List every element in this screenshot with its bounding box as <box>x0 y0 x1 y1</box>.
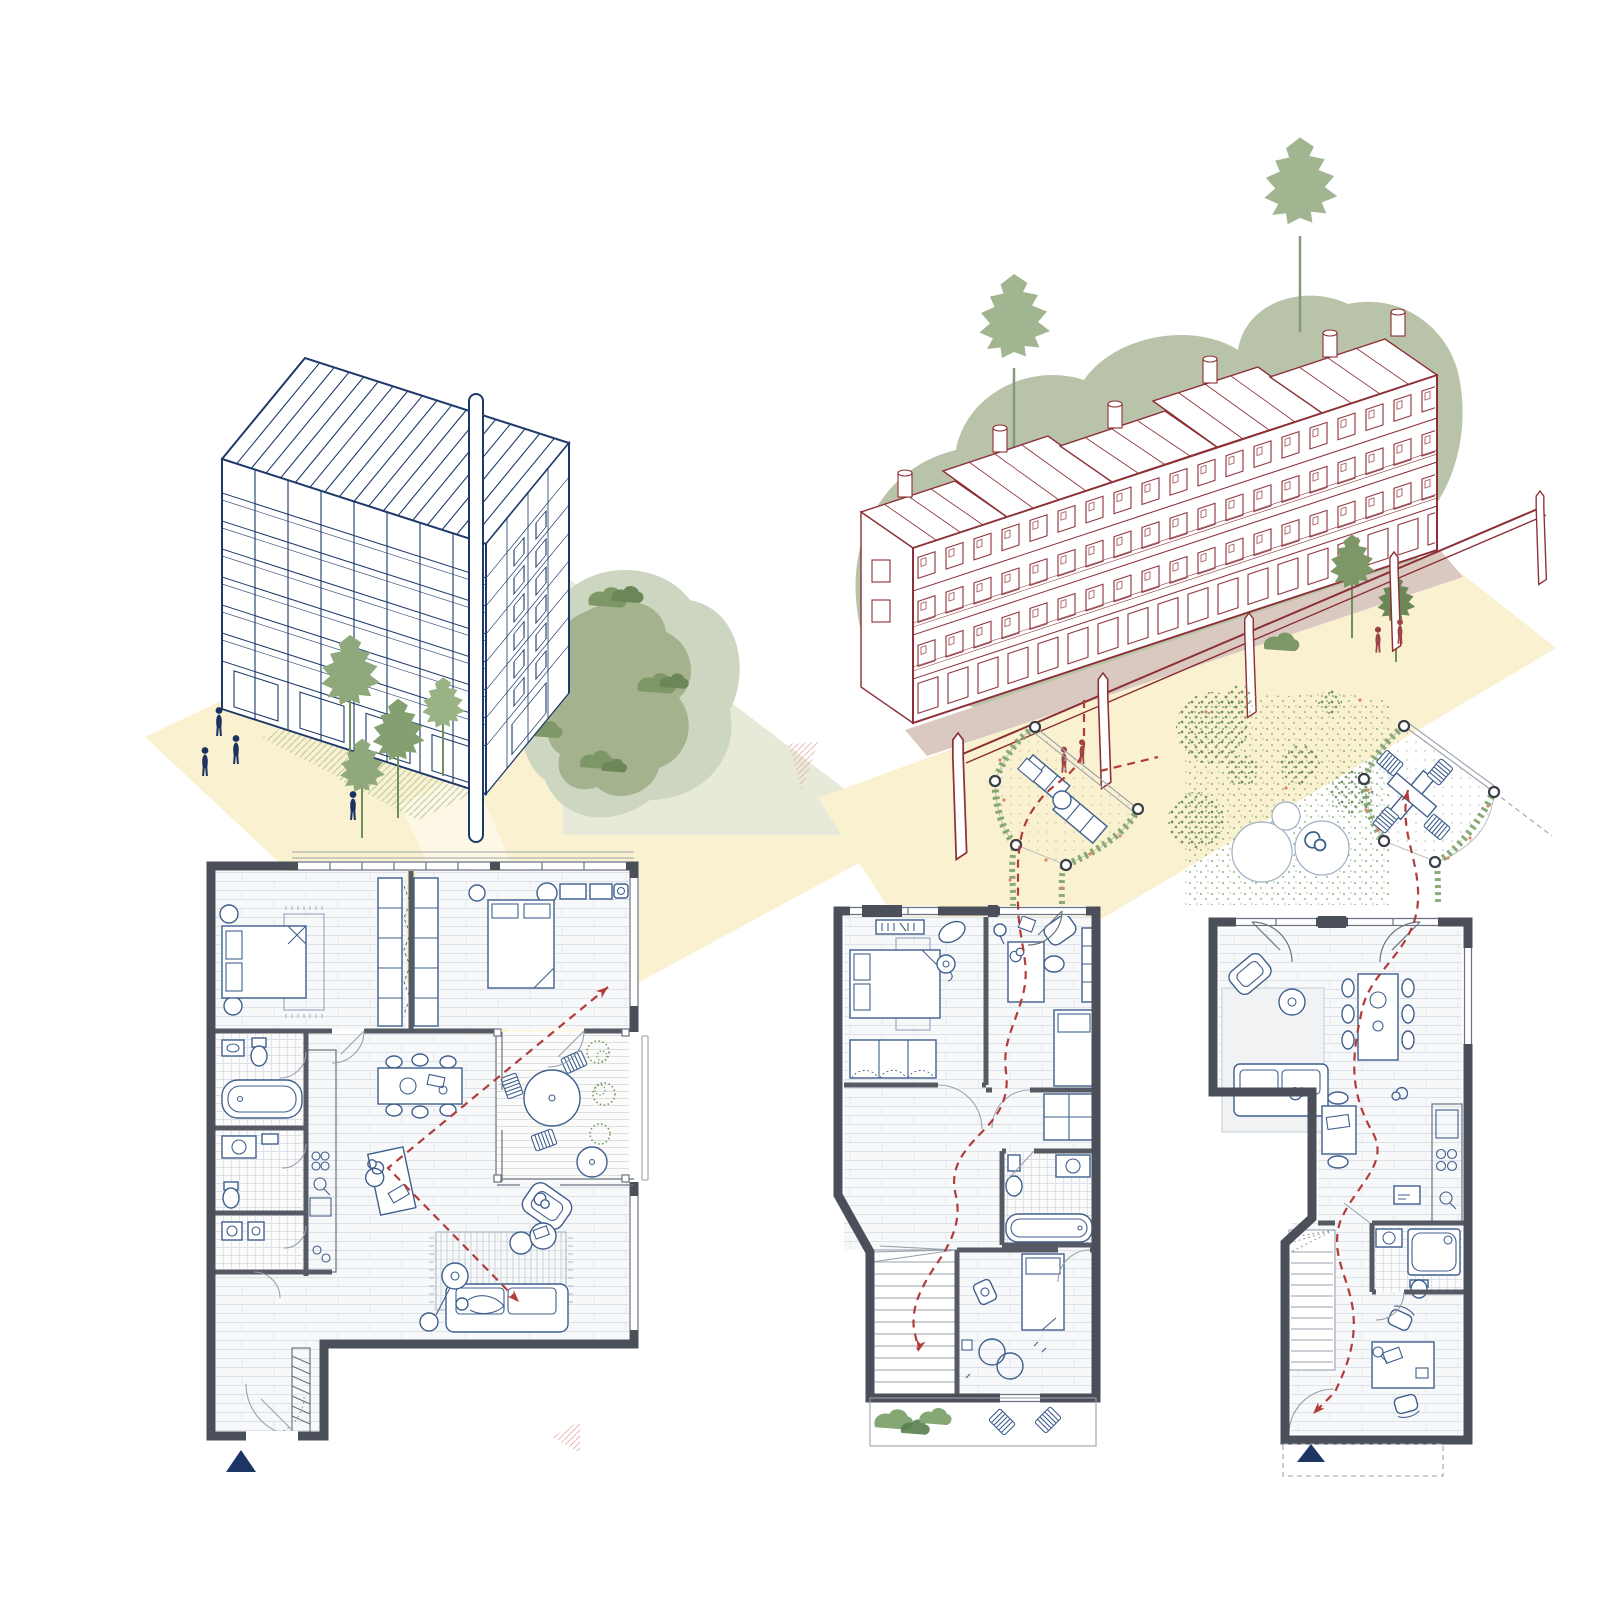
panel-apartment-plan <box>211 852 648 1472</box>
balcony <box>870 1398 1096 1446</box>
architectural-sheet <box>0 0 1600 1600</box>
tree-icon <box>1264 137 1337 224</box>
panel-maisonette-b <box>1168 684 1552 1476</box>
garden <box>1168 684 1552 905</box>
panel-iso-red-terrace <box>788 137 1556 1008</box>
beanbag <box>1295 821 1349 875</box>
window-block <box>862 905 902 917</box>
window-block <box>1318 916 1346 928</box>
north-arrow-icon <box>226 1450 256 1472</box>
gable-end <box>861 512 913 723</box>
sheet-canvas <box>0 0 1600 1600</box>
tree-icon <box>980 274 1051 358</box>
chimney-pole <box>469 394 483 842</box>
pink-hatch-triangle <box>552 1421 580 1453</box>
north-arrow-icon <box>1297 1444 1325 1462</box>
